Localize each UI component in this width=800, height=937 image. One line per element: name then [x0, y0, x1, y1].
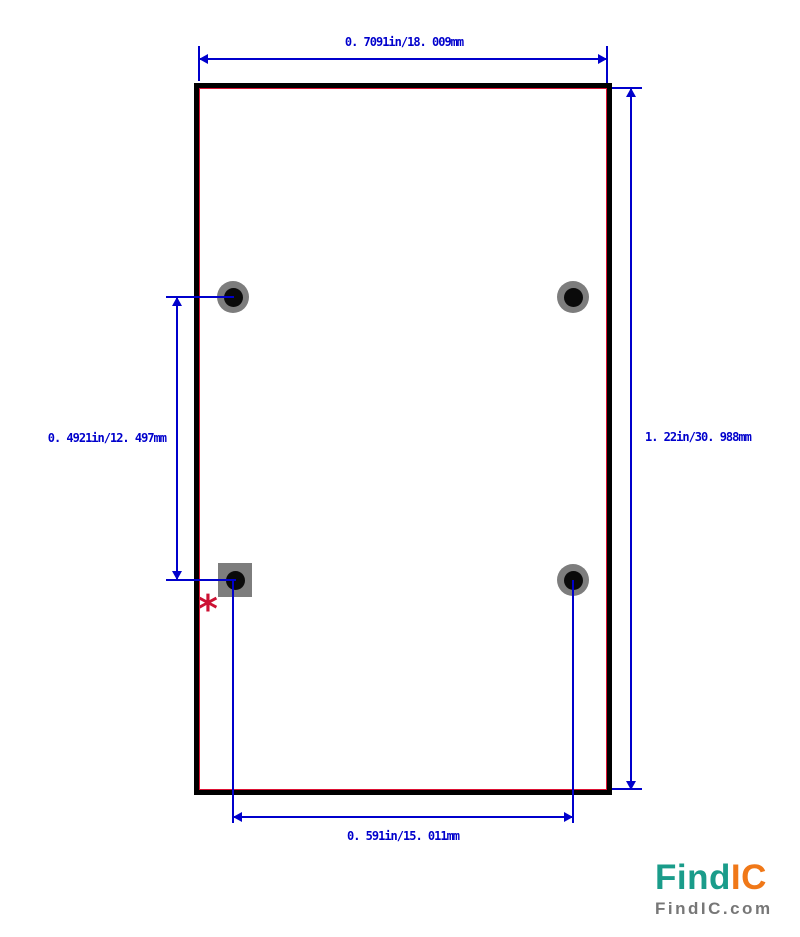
- package-outline: [194, 83, 612, 795]
- logo-text-find: Find: [655, 858, 731, 897]
- left-dim-arrow-up-icon: [172, 297, 182, 306]
- logo-text-ic: IC: [731, 858, 767, 897]
- bottom-dim-line: [233, 816, 573, 818]
- bottom-dim-arrow-left-icon: [233, 812, 242, 822]
- silkscreen-outline: [199, 88, 607, 790]
- left-dimension-label: 0. 4921in/12. 497mm: [20, 431, 166, 445]
- findic-logo[interactable]: FindIC FindIC.com: [655, 859, 795, 919]
- left-dim-line: [176, 297, 178, 580]
- right-dim-arrow-down-icon: [626, 781, 636, 790]
- right-dimension-label: 1. 22in/30. 988mm: [645, 430, 751, 444]
- pad-top-right-hole: [564, 288, 583, 307]
- top-dimension-label: 0. 7091in/18. 009mm: [194, 35, 614, 49]
- pin1-asterisk-marker: *: [198, 590, 218, 628]
- bottom-dimension-label: 0. 591in/15. 011mm: [203, 829, 603, 843]
- findic-domain-text: FindIC.com: [655, 899, 795, 919]
- bottom-dim-extension-left: [232, 580, 234, 823]
- top-dim-arrow-right-icon: [598, 54, 607, 64]
- top-dim-extension-right: [606, 46, 608, 83]
- bottom-dim-arrow-right-icon: [564, 812, 573, 822]
- left-dim-arrow-down-icon: [172, 571, 182, 580]
- bottom-dim-extension-right: [572, 580, 574, 823]
- footprint-drawing-canvas: 0. 7091in/18. 009mm 1. 22in/30. 988mm 0.…: [0, 0, 800, 937]
- right-dim-arrow-up-icon: [626, 88, 636, 97]
- findic-logo-wordmark: FindIC: [655, 859, 795, 898]
- top-dim-line: [199, 58, 607, 60]
- right-dim-line: [630, 88, 632, 790]
- top-dim-arrow-left-icon: [199, 54, 208, 64]
